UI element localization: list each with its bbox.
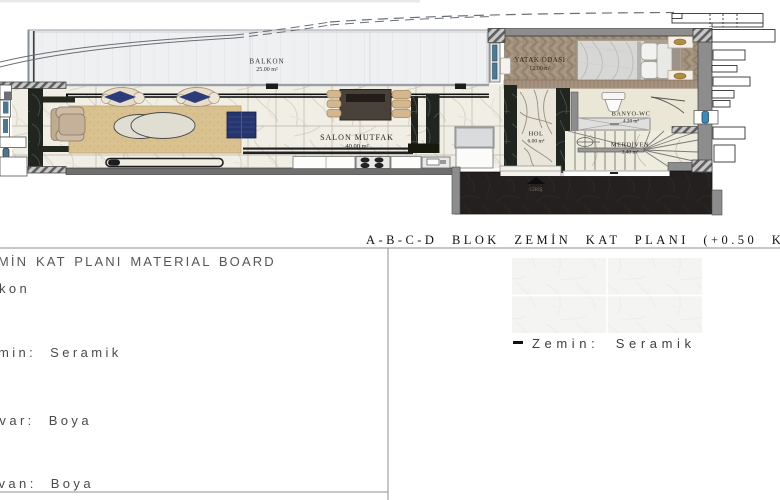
svg-text:Zemin: Seramik: Zemin: Seramik [532,336,696,351]
svg-text:25.00 m²: 25.00 m² [256,67,278,73]
svg-text:BANYO-WC: BANYO-WC [612,111,651,118]
svg-text:SALON MUTFAK: SALON MUTFAK [320,133,394,142]
svg-text:Duvar: Boya: Duvar: Boya [0,413,92,428]
svg-text:Tavan: Boya: Tavan: Boya [0,476,94,491]
svg-text:12.00 m²: 12.00 m² [529,66,551,72]
svg-text:A-B-C-D BLOK ZEMİN KAT PLANI (: A-B-C-D BLOK ZEMİN KAT PLANI (+0.50 K [366,233,780,247]
svg-text:YATAK ODASI: YATAK ODASI [514,56,565,64]
svg-text:HOL: HOL [529,131,544,138]
svg-text:ZEMİN KAT PLANI MATERIAL BOARD: ZEMİN KAT PLANI MATERIAL BOARD [0,254,276,269]
svg-text:4.20 m²: 4.20 m² [623,119,639,125]
svg-text:Balkon: Balkon [0,281,30,296]
svg-text:40.00 m²: 40.00 m² [345,143,368,150]
svg-text:GİRİŞ: GİRİŞ [529,187,542,193]
svg-text:BALKON: BALKON [249,58,284,66]
svg-text:6.00 m²: 6.00 m² [528,139,545,145]
svg-text:MERDİVEN: MERDİVEN [611,142,649,149]
svg-text:3.40 m²: 3.40 m² [622,150,639,156]
svg-text:Zemin: Seramik: Zemin: Seramik [0,345,122,360]
